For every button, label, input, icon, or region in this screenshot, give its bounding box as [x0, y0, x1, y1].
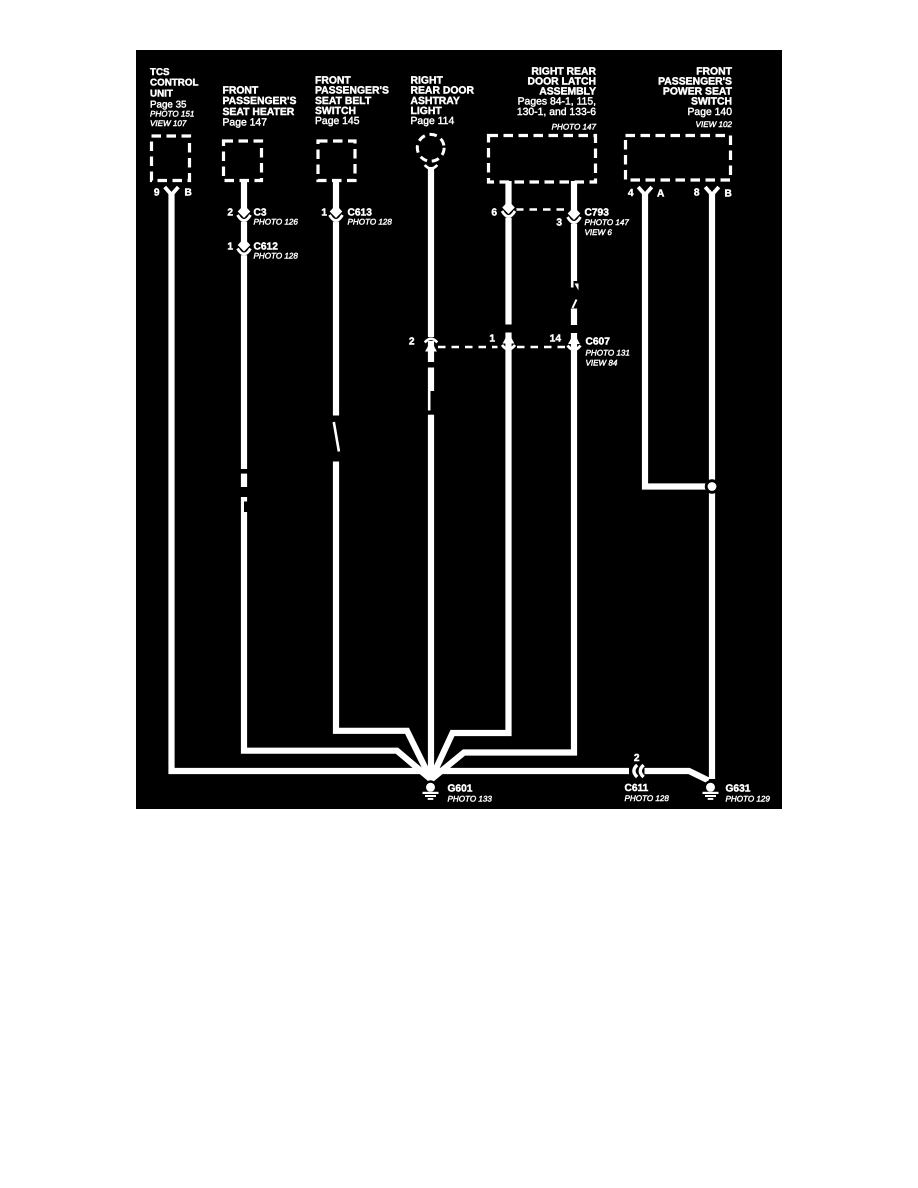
- svg-text:4: 4: [628, 188, 634, 199]
- svg-text:C607: C607: [586, 337, 611, 348]
- svg-text:14: 14: [550, 334, 562, 345]
- svg-text:9: 9: [154, 188, 160, 199]
- svg-text:2: 2: [227, 208, 233, 219]
- svg-text:UNIT: UNIT: [150, 88, 173, 99]
- svg-text:FRONT: FRONT: [223, 85, 259, 96]
- svg-text:PHOTO 147: PHOTO 147: [552, 123, 597, 132]
- svg-text:PHOTO 133: PHOTO 133: [448, 795, 493, 804]
- svg-text:VIEW 102: VIEW 102: [696, 120, 733, 129]
- svg-text:Page 145: Page 145: [315, 116, 360, 127]
- svg-text:A: A: [657, 189, 665, 200]
- svg-text:PHOTO 128: PHOTO 128: [625, 794, 670, 803]
- svg-text:Page 114: Page 114: [411, 116, 455, 127]
- svg-text:PHOTO 151: PHOTO 151: [150, 110, 194, 119]
- svg-text:SEAT HEATER: SEAT HEATER: [223, 107, 295, 118]
- svg-text:1: 1: [227, 242, 233, 253]
- svg-text:Page 147: Page 147: [223, 118, 268, 129]
- svg-text:VIEW 6: VIEW 6: [585, 228, 613, 237]
- svg-text:PHOTO 126: PHOTO 126: [254, 218, 299, 227]
- svg-text:3: 3: [556, 218, 562, 229]
- svg-text:PHOTO 128: PHOTO 128: [254, 252, 299, 261]
- svg-text:130-1, and 133-6: 130-1, and 133-6: [517, 107, 596, 118]
- svg-text:1: 1: [321, 208, 327, 219]
- svg-text:PASSENGER'S: PASSENGER'S: [223, 96, 297, 107]
- svg-text:PHOTO 147: PHOTO 147: [585, 218, 630, 227]
- svg-text:6: 6: [491, 208, 497, 219]
- svg-text:G601: G601: [448, 784, 473, 795]
- svg-text:C793: C793: [585, 208, 610, 219]
- svg-text:TCS: TCS: [150, 67, 170, 78]
- svg-text:G631: G631: [726, 784, 751, 795]
- svg-text:PHOTO 129: PHOTO 129: [726, 795, 771, 804]
- svg-text:PHOTO 131: PHOTO 131: [586, 349, 630, 358]
- svg-text:8: 8: [694, 188, 700, 199]
- svg-text:VIEW 84: VIEW 84: [586, 359, 618, 368]
- svg-text:C611: C611: [625, 783, 649, 794]
- svg-text:2: 2: [409, 337, 415, 348]
- svg-text:2: 2: [634, 753, 640, 764]
- svg-text:B: B: [185, 188, 192, 199]
- svg-text:PHOTO 128: PHOTO 128: [348, 218, 393, 227]
- svg-text:1: 1: [489, 334, 495, 345]
- svg-text:CONTROL: CONTROL: [150, 78, 198, 89]
- svg-text:Page 140: Page 140: [688, 107, 733, 118]
- svg-text:VIEW 107: VIEW 107: [150, 119, 187, 128]
- svg-text:B: B: [725, 189, 732, 200]
